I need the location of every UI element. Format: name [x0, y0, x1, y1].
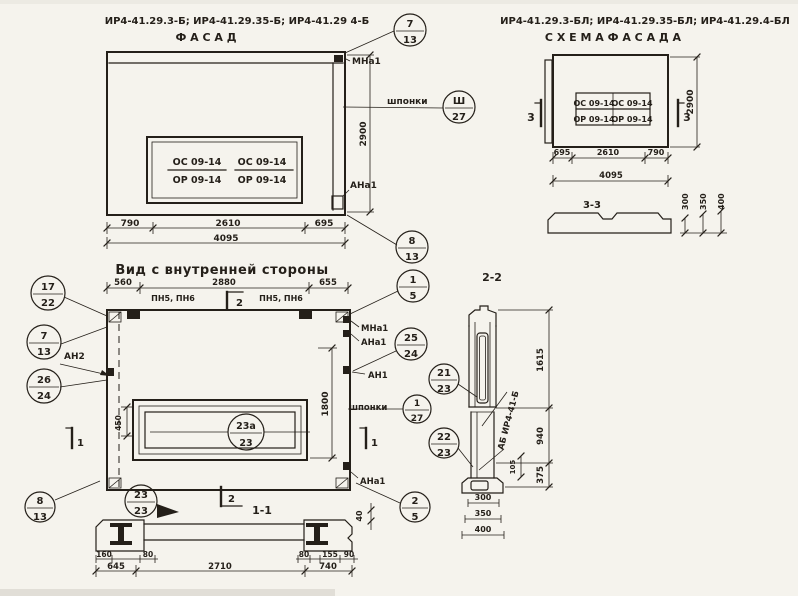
section-1-1: 23 23 2 1-1 160 80 80	[93, 485, 358, 577]
label-an2-group: АН2	[60, 352, 110, 376]
label-ana1: АНа1	[361, 338, 386, 348]
svg-text:23: 23	[239, 438, 252, 449]
label-shponki-inner: шпонки	[349, 403, 387, 413]
section-2-2-dims-right: 1615 940 375 105	[496, 307, 553, 490]
svg-text:160: 160	[96, 550, 112, 559]
svg-text:АБ ИР4-41-Б: АБ ИР4-41-Б	[496, 390, 521, 451]
callout-sh-27: Ш 27	[443, 91, 475, 123]
label-pn: ПН5, ПН6	[259, 294, 303, 303]
scheme-section-marker-left: 3	[527, 100, 541, 126]
svg-text:450: 450	[114, 415, 123, 431]
scheme-drawing: ИР4-41.29.3-БЛ; ИР4-41.29.35-БЛ; ИР4-41.…	[500, 16, 790, 187]
svg-text:23: 23	[134, 506, 148, 517]
inner-view-drawing: Вид с внутренней стороны 560 2880 655 ПН…	[25, 263, 431, 530]
svg-text:1: 1	[414, 399, 420, 409]
svg-text:400: 400	[475, 525, 492, 534]
scheme-window-mark: ОР 09-14	[573, 115, 614, 124]
svg-text:80: 80	[143, 550, 153, 559]
scheme-dimensions-bottom: 695 2610 790 4095	[550, 148, 671, 187]
inner-section-marker-1-right: 1	[360, 428, 378, 449]
callout-23a-23: 23а 23	[150, 414, 310, 450]
scheme-dimension-height: 2900	[670, 54, 700, 150]
svg-text:2880: 2880	[212, 278, 236, 288]
callout-8-13-inner: 8 13	[25, 481, 100, 523]
inner-anchor-ana1	[343, 330, 351, 337]
scheme-subtitle: С Х Е М А Ф А С А Д А	[545, 31, 682, 44]
facade-subtitle: Ф А С А Д	[175, 31, 236, 44]
svg-text:4095: 4095	[599, 171, 623, 181]
svg-text:17: 17	[41, 282, 55, 293]
facade-anchor-plate-bottom	[332, 196, 343, 209]
section-1-1-profile	[96, 520, 352, 551]
svg-text:23: 23	[437, 384, 451, 395]
facade-window: ОС 09-14 ОР 09-14 ОС 09-14 ОР 09-14	[147, 137, 302, 203]
facade-dimensions-bottom: 790 2610 695 4095	[104, 219, 348, 249]
callout-1-5: 1 5	[350, 270, 429, 314]
svg-text:400: 400	[717, 193, 726, 210]
svg-text:80: 80	[299, 550, 309, 559]
section-2-2: 2-2 21 23 22	[429, 271, 553, 539]
inner-anchor-ana1-bot	[343, 462, 351, 470]
section-1-1-title: 1-1	[252, 504, 272, 517]
section-1-1-dims: 160 80 80 155 90 645 2710 740	[93, 550, 358, 577]
section-3-3-title: 3-3	[583, 200, 601, 211]
inner-dim-40: 40	[355, 503, 374, 530]
svg-text:Ш: Ш	[453, 96, 465, 107]
scheme-window-mark: ОР 09-14	[611, 115, 652, 124]
section-2-2-diag-label: АБ ИР4-41-Б	[479, 390, 522, 470]
callout-2-5: 2 5	[356, 483, 430, 523]
section-2-2-profile	[462, 306, 503, 493]
svg-text:22: 22	[437, 432, 451, 443]
facade-window-mark: ОС 09-14	[238, 157, 287, 168]
svg-text:7: 7	[41, 331, 48, 342]
svg-text:695: 695	[554, 148, 571, 157]
svg-text:655: 655	[319, 278, 337, 288]
dim: 2610	[215, 219, 240, 229]
facade-panel-outline	[107, 52, 345, 215]
svg-text:1800: 1800	[321, 391, 331, 416]
scheme-window-mark: ОС 09-14	[611, 99, 652, 108]
svg-text:23: 23	[437, 448, 451, 459]
svg-text:27: 27	[411, 414, 424, 424]
drawing-canvas: ИР4-41.29.3-Б; ИР4-41.29.35-Б; ИР4-41.29…	[0, 0, 798, 596]
inner-window	[133, 400, 307, 460]
inner-section-marker-1-left: 1	[66, 428, 84, 449]
svg-text:300: 300	[475, 493, 492, 502]
callout-8-13: 8 13	[347, 215, 428, 263]
facade-window-mark: ОР 09-14	[238, 175, 287, 186]
scheme-window-mark: ОС 09-14	[573, 99, 614, 108]
svg-text:2: 2	[236, 298, 243, 309]
svg-text:790: 790	[648, 148, 665, 157]
svg-text:2710: 2710	[208, 562, 232, 572]
facade-title: ИР4-41.29.3-Б; ИР4-41.29.35-Б; ИР4-41.29…	[105, 16, 370, 27]
svg-text:2900: 2900	[686, 89, 696, 114]
label-mna1: МНа1	[361, 324, 388, 334]
scan-artifact	[0, 589, 335, 596]
label-shponki: шпонки	[387, 97, 428, 107]
section-2-2-title: 2-2	[482, 271, 502, 284]
facade-window-mark: ОС 09-14	[173, 157, 222, 168]
dim: 695	[315, 219, 334, 229]
section-2-2-dims-bottom: 300 350 400	[462, 493, 504, 539]
svg-text:350: 350	[699, 193, 708, 210]
svg-text:24: 24	[37, 391, 51, 402]
svg-text:1615: 1615	[536, 348, 546, 372]
svg-text:5: 5	[410, 291, 417, 302]
label-ana1: АНа1	[350, 181, 377, 191]
svg-text:13: 13	[37, 347, 51, 358]
svg-text:27: 27	[452, 112, 466, 123]
label-mna1: МНа1	[352, 57, 381, 67]
svg-text:300: 300	[681, 193, 690, 210]
svg-text:23а: 23а	[236, 421, 256, 432]
label-an1: АН1	[368, 371, 388, 381]
inner-anchor-mna1	[343, 316, 351, 323]
svg-text:40: 40	[355, 510, 364, 522]
svg-text:350: 350	[475, 509, 492, 518]
svg-text:13: 13	[403, 35, 417, 46]
callout-26-24: 26 24	[27, 369, 107, 403]
scheme-window: ОС 09-14 ОР 09-14 ОС 09-14 ОР 09-14	[573, 93, 652, 125]
scan-artifact	[0, 0, 798, 4]
facade-drawing: ИР4-41.29.3-Б; ИР4-41.29.35-Б; ИР4-41.29…	[104, 14, 475, 263]
svg-text:645: 645	[107, 562, 125, 572]
svg-text:21: 21	[437, 368, 451, 379]
svg-text:26: 26	[37, 375, 51, 386]
facade-window-mark: ОР 09-14	[173, 175, 222, 186]
facade-anchor-plate-top	[334, 55, 343, 62]
inner-section-marker-2-top: 2	[227, 292, 243, 309]
svg-text:24: 24	[404, 349, 418, 360]
svg-text:8: 8	[37, 496, 44, 507]
callout-17-22: 17 22	[31, 276, 107, 316]
svg-text:2610: 2610	[597, 148, 620, 157]
inner-dim-450: 450	[114, 404, 134, 439]
svg-text:7: 7	[407, 19, 414, 30]
svg-text:3: 3	[527, 111, 535, 124]
svg-text:560: 560	[114, 278, 132, 288]
dim: 2900	[359, 121, 369, 146]
svg-text:1: 1	[371, 438, 378, 449]
svg-text:1: 1	[77, 438, 84, 449]
label-an2: АН2	[64, 352, 85, 362]
inner-anchor-an1	[343, 366, 351, 374]
scheme-title: ИР4-41.29.3-БЛ; ИР4-41.29.35-БЛ; ИР4-41.…	[500, 16, 790, 27]
svg-text:8: 8	[409, 236, 416, 247]
svg-text:1: 1	[410, 275, 417, 286]
section-3-3-profile	[548, 213, 671, 233]
svg-text:13: 13	[33, 512, 47, 523]
callout-25-24: 25 24	[353, 328, 427, 371]
inner-dim-1800: 1800	[310, 345, 337, 461]
dim: 4095	[213, 234, 238, 244]
label-pn: ПН5, ПН6	[151, 294, 195, 303]
scheme-side-strip	[545, 60, 552, 143]
callout-21-23: 21 23	[429, 364, 477, 397]
svg-text:375: 375	[536, 466, 546, 484]
svg-text:2: 2	[228, 494, 235, 505]
svg-text:105: 105	[509, 460, 517, 475]
label-ana1-bot: АНа1	[360, 477, 385, 487]
svg-text:2: 2	[412, 496, 419, 507]
inner-plate-top-right	[299, 310, 312, 319]
svg-text:13: 13	[405, 252, 419, 263]
svg-text:90: 90	[344, 550, 354, 559]
section-3-3-dims: 300 350 400	[680, 193, 727, 236]
svg-text:23: 23	[134, 490, 148, 501]
svg-text:740: 740	[319, 562, 337, 572]
inner-view-title: Вид с внутренней стороны	[115, 263, 328, 278]
drawing-sheet: ИР4-41.29.3-Б; ИР4-41.29.35-Б; ИР4-41.29…	[0, 0, 798, 596]
svg-text:22: 22	[41, 298, 55, 309]
svg-text:25: 25	[404, 333, 418, 344]
inner-plate-top-left	[127, 310, 140, 319]
svg-text:5: 5	[412, 512, 419, 523]
section-3-3: 3-3 300 350 400	[548, 193, 727, 236]
svg-text:155: 155	[322, 550, 338, 559]
dim: 790	[121, 219, 140, 229]
callout-22-23: 22 23	[429, 428, 473, 467]
svg-text:940: 940	[536, 427, 546, 445]
